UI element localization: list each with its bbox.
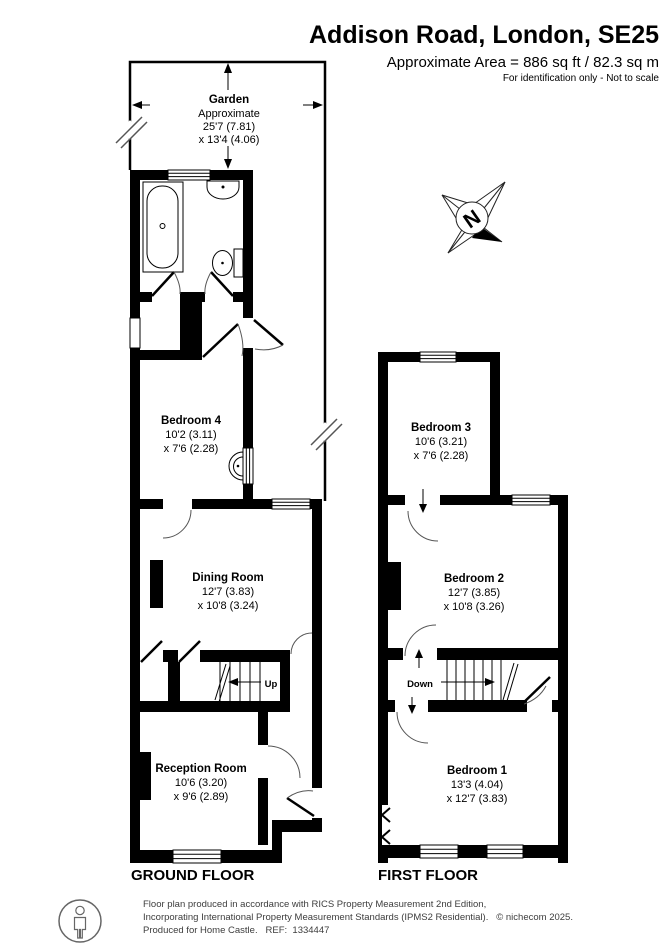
bedroom2-label: Bedroom 2 12'7 (3.85) x 10'8 (3.26) <box>444 573 505 613</box>
svg-text:x 13'4 (4.06): x 13'4 (4.06) <box>199 134 260 146</box>
bedroom1-label: Bedroom 1 13'3 (4.04) x 12'7 (3.83) <box>447 765 508 805</box>
page-title: Addison Road, London, SE25 <box>309 21 659 49</box>
svg-text:Bedroom 4: Bedroom 4 <box>161 415 222 427</box>
floorplan-svg: Addison Road, London, SE25 Approximate A… <box>0 0 670 947</box>
svg-text:12'7 (3.83): 12'7 (3.83) <box>202 586 254 598</box>
bedroom3-label: Bedroom 3 10'6 (3.21) x 7'6 (2.28) <box>411 422 471 462</box>
svg-text:Incorporating International Pr: Incorporating International Property Mea… <box>143 912 573 923</box>
wall-recess-marks <box>382 808 390 844</box>
approximate-area: Approximate Area = 886 sq ft / 82.3 sq m <box>387 54 659 71</box>
svg-text:x 12'7 (3.83): x 12'7 (3.83) <box>447 793 508 805</box>
svg-text:Produced for Home Castle. RE: Produced for Home Castle. REF: 1334447 <box>143 925 329 936</box>
svg-text:Bedroom 1: Bedroom 1 <box>447 765 508 777</box>
svg-text:10'6 (3.21): 10'6 (3.21) <box>415 436 467 448</box>
svg-text:x 9'6 (2.89): x 9'6 (2.89) <box>174 791 229 803</box>
footer-text: Floor plan produced in accordance with R… <box>143 899 573 936</box>
sink-icon <box>207 181 239 199</box>
svg-text:Bedroom 2: Bedroom 2 <box>444 573 504 585</box>
reception-room-label: Reception Room 10'6 (3.20) x 9'6 (2.89) <box>155 763 246 803</box>
garden-label: Garden Approximate 25'7 (7.81) x 13'4 (4… <box>198 94 260 146</box>
svg-text:10'2 (3.11): 10'2 (3.11) <box>165 429 216 441</box>
svg-text:x 10'8 (3.26): x 10'8 (3.26) <box>444 601 505 613</box>
floorplan-page: Addison Road, London, SE25 Approximate A… <box>0 0 670 947</box>
ground-floor-title: GROUND FLOOR <box>131 867 254 884</box>
ground-floor-stairs <box>215 662 261 702</box>
identification-note: For identification only - Not to scale <box>503 73 660 84</box>
svg-text:x 10'8 (3.24): x 10'8 (3.24) <box>198 600 259 612</box>
svg-text:Reception Room: Reception Room <box>155 763 246 775</box>
first-floor-title: FIRST FLOOR <box>378 867 478 884</box>
svg-text:Dining Room: Dining Room <box>192 572 264 584</box>
dining-room-label: Dining Room 12'7 (3.83) x 10'8 (3.24) <box>192 572 264 612</box>
svg-text:x 7'6 (2.28): x 7'6 (2.28) <box>164 443 219 455</box>
bedroom4-label: Bedroom 4 10'2 (3.11) x 7'6 (2.28) <box>161 415 222 455</box>
svg-text:Garden: Garden <box>209 94 249 106</box>
svg-text:Approximate: Approximate <box>198 108 260 120</box>
svg-text:Bedroom 3: Bedroom 3 <box>411 422 471 434</box>
bedroom4-sink-icon <box>229 452 243 480</box>
svg-text:25'7 (7.81): 25'7 (7.81) <box>203 121 255 133</box>
svg-text:x 7'6 (2.28): x 7'6 (2.28) <box>414 450 469 462</box>
svg-text:13'3 (4.04): 13'3 (4.04) <box>451 779 503 791</box>
svg-text:Floor plan produced in accorda: Floor plan produced in accordance with R… <box>143 899 486 910</box>
footer-logo-icon <box>59 900 101 942</box>
svg-text:12'7 (3.85): 12'7 (3.85) <box>448 587 500 599</box>
stairs-down-label: Down <box>407 679 433 690</box>
bathtub-icon <box>143 182 183 272</box>
svg-text:10'6 (3.20): 10'6 (3.20) <box>175 777 227 789</box>
toilet-icon <box>213 249 244 277</box>
compass-icon: N <box>442 182 505 253</box>
first-floor-stairs <box>441 660 518 701</box>
stairs-up-label: Up <box>265 679 278 690</box>
